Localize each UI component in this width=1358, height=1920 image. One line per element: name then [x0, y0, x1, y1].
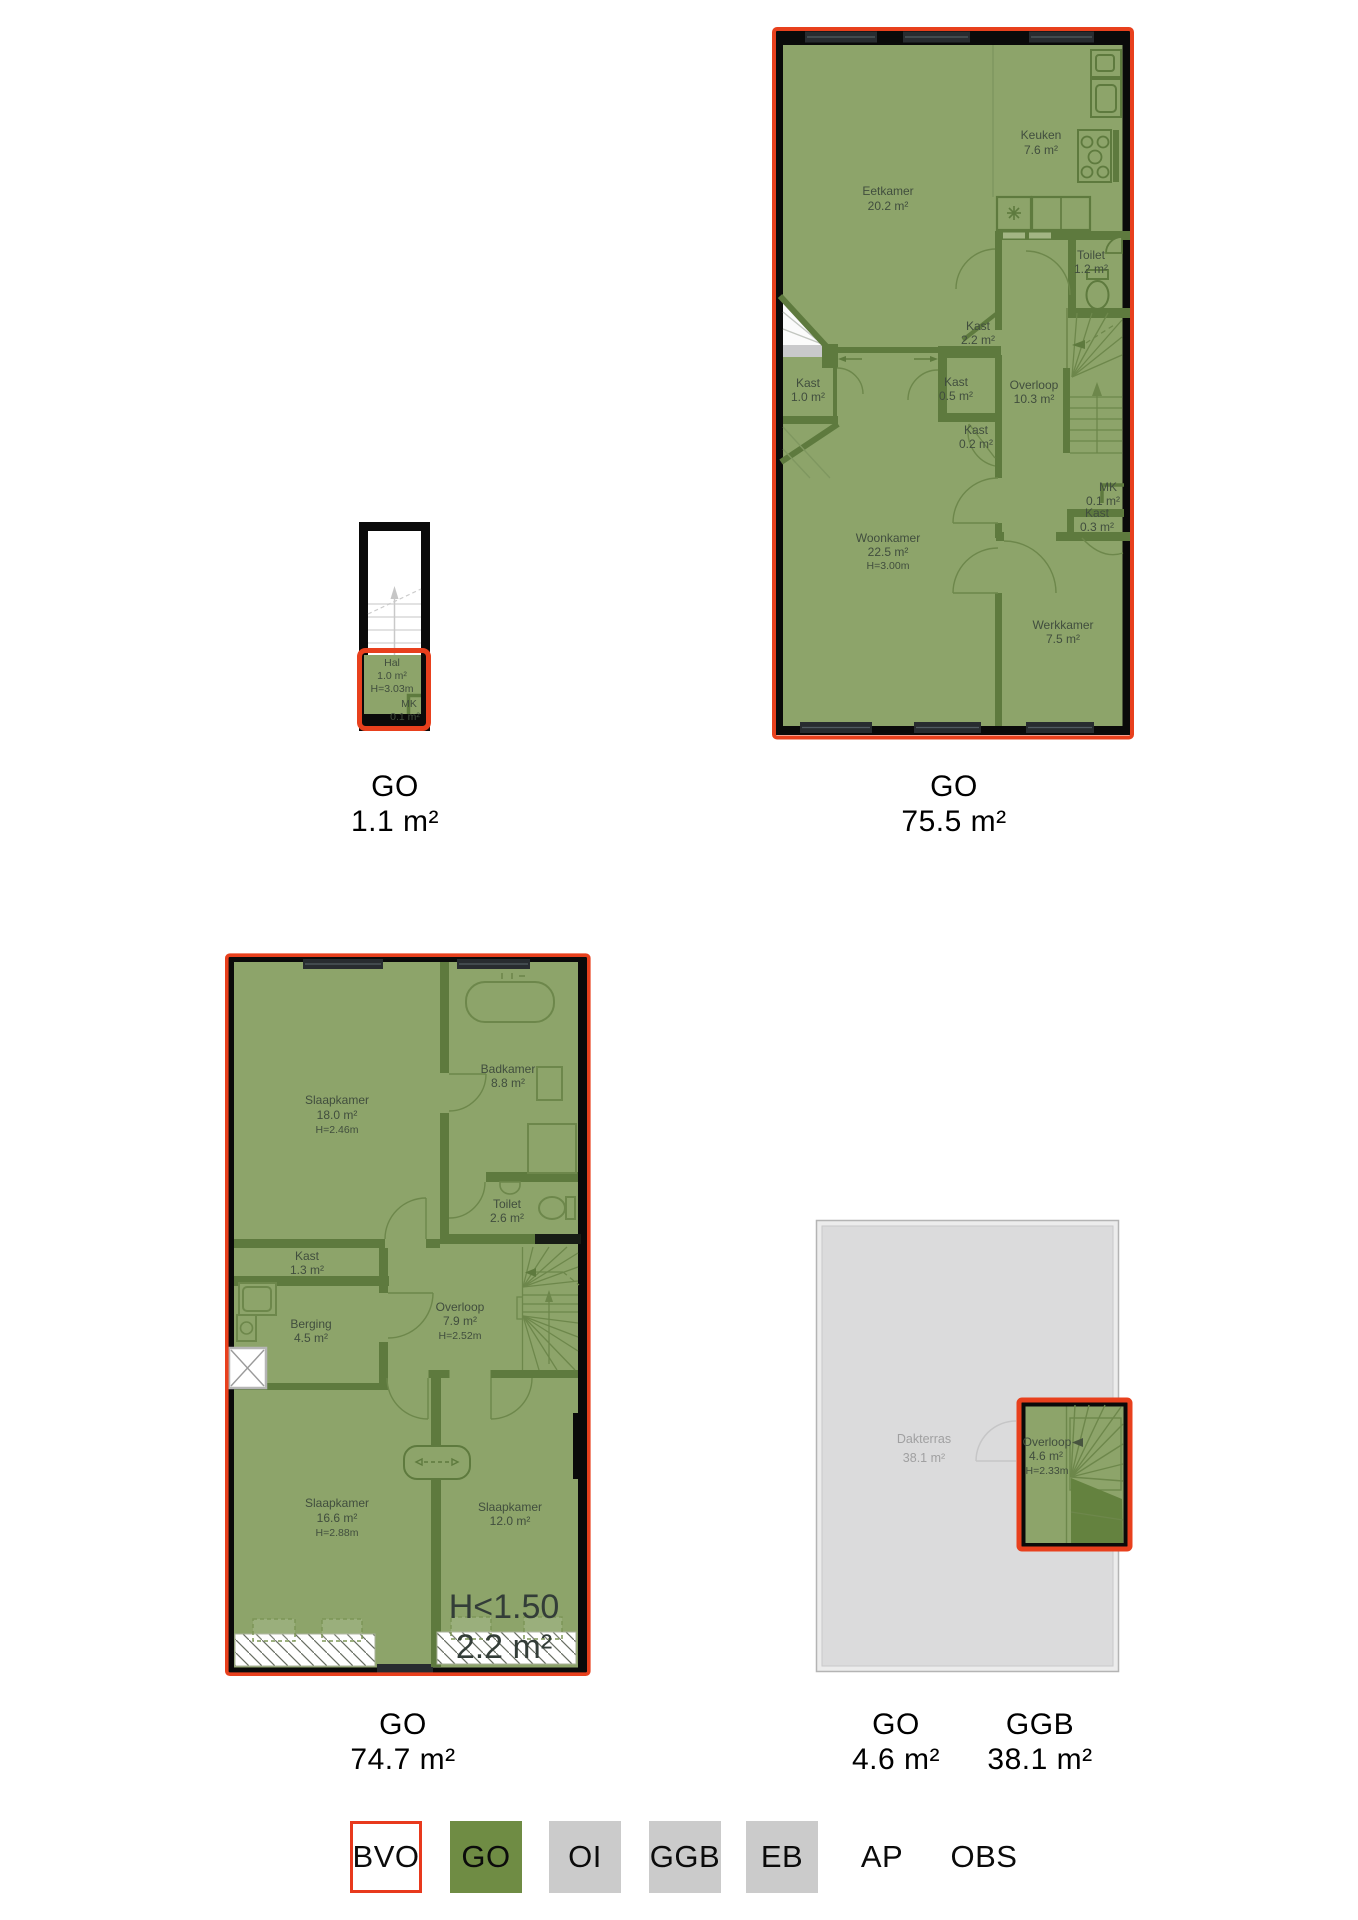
svg-text:10.3 m²: 10.3 m²: [1014, 392, 1055, 406]
svg-text:Werkkamer: Werkkamer: [1032, 618, 1093, 632]
svg-text:H=2.88m: H=2.88m: [316, 1527, 359, 1539]
svg-text:H<1.50: H<1.50: [449, 1588, 560, 1626]
svg-text:Overloop: Overloop: [1023, 1435, 1072, 1449]
svg-text:Dakterras: Dakterras: [897, 1432, 951, 1446]
svg-text:2.2 m²: 2.2 m²: [456, 1628, 552, 1666]
svg-text:38.1 m²: 38.1 m²: [903, 1451, 945, 1465]
svg-text:8.8 m²: 8.8 m²: [491, 1076, 525, 1090]
svg-text:1.0 m²: 1.0 m²: [377, 670, 407, 682]
svg-text:Kast: Kast: [796, 376, 821, 390]
svg-text:Woonkamer: Woonkamer: [856, 531, 920, 545]
svg-text:MK: MK: [401, 698, 417, 710]
svg-text:Overloop: Overloop: [436, 1300, 485, 1314]
svg-text:Toilet: Toilet: [493, 1197, 522, 1211]
svg-text:H=3.00m: H=3.00m: [867, 560, 910, 572]
svg-text:16.6 m²: 16.6 m²: [317, 1511, 358, 1525]
svg-text:Kast: Kast: [295, 1249, 320, 1263]
svg-text:Toilet: Toilet: [1077, 248, 1106, 262]
svg-text:Badkamer: Badkamer: [481, 1062, 536, 1076]
svg-text:Hal: Hal: [384, 657, 400, 669]
svg-text:0.1 m²: 0.1 m²: [390, 711, 420, 723]
svg-text:7.6 m²: 7.6 m²: [1024, 143, 1058, 157]
svg-text:Kast: Kast: [964, 423, 989, 437]
svg-text:2.2 m²: 2.2 m²: [961, 333, 995, 347]
svg-text:7.9 m²: 7.9 m²: [443, 1314, 477, 1328]
svg-text:Berging: Berging: [290, 1317, 331, 1331]
svg-text:1.3 m²: 1.3 m²: [290, 1263, 324, 1277]
svg-text:Eetkamer: Eetkamer: [862, 184, 913, 198]
svg-text:Slaapkamer: Slaapkamer: [478, 1500, 542, 1514]
svg-text:22.5 m²: 22.5 m²: [868, 545, 909, 559]
svg-text:12.0 m²: 12.0 m²: [490, 1514, 531, 1528]
svg-text:4.6 m²: 4.6 m²: [1029, 1449, 1063, 1463]
svg-text:0.3 m²: 0.3 m²: [1080, 520, 1114, 534]
svg-text:0.2 m²: 0.2 m²: [959, 437, 993, 451]
svg-text:Kast: Kast: [944, 375, 969, 389]
svg-text:Kast: Kast: [1085, 506, 1110, 520]
svg-text:H=2.52m: H=2.52m: [439, 1330, 482, 1342]
svg-text:Keuken: Keuken: [1021, 128, 1062, 142]
svg-text:MK: MK: [1099, 480, 1117, 494]
svg-text:18.0 m²: 18.0 m²: [317, 1108, 358, 1122]
svg-text:7.5 m²: 7.5 m²: [1046, 632, 1080, 646]
svg-text:20.2 m²: 20.2 m²: [868, 199, 909, 213]
svg-text:0.5 m²: 0.5 m²: [939, 389, 973, 403]
svg-text:H=2.33m: H=2.33m: [1026, 1465, 1069, 1477]
svg-text:Slaapkamer: Slaapkamer: [305, 1093, 369, 1107]
svg-text:1.2 m²: 1.2 m²: [1074, 262, 1108, 276]
svg-text:Kast: Kast: [966, 319, 991, 333]
svg-text:4.5 m²: 4.5 m²: [294, 1331, 328, 1345]
svg-text:Overloop: Overloop: [1010, 378, 1059, 392]
svg-text:Slaapkamer: Slaapkamer: [305, 1496, 369, 1510]
svg-text:H=2.46m: H=2.46m: [316, 1124, 359, 1136]
svg-text:1.0 m²: 1.0 m²: [791, 390, 825, 404]
svg-text:2.6 m²: 2.6 m²: [490, 1211, 524, 1225]
svg-text:H=3.03m: H=3.03m: [371, 683, 414, 695]
